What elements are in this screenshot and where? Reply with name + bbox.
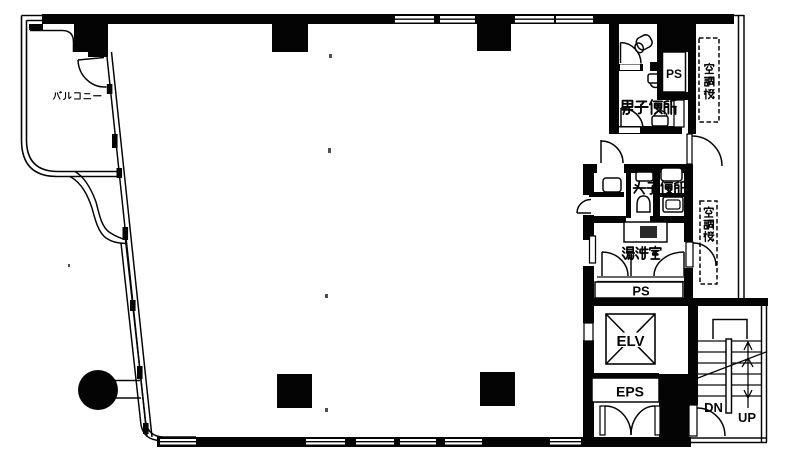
svg-text:PS: PS — [632, 284, 650, 299]
svg-text:DN: DN — [704, 400, 723, 415]
svg-text:UP: UP — [738, 410, 756, 425]
svg-text:ELV: ELV — [616, 333, 644, 350]
svg-text:PS: PS — [666, 67, 682, 81]
svg-text:EPS: EPS — [616, 384, 644, 400]
